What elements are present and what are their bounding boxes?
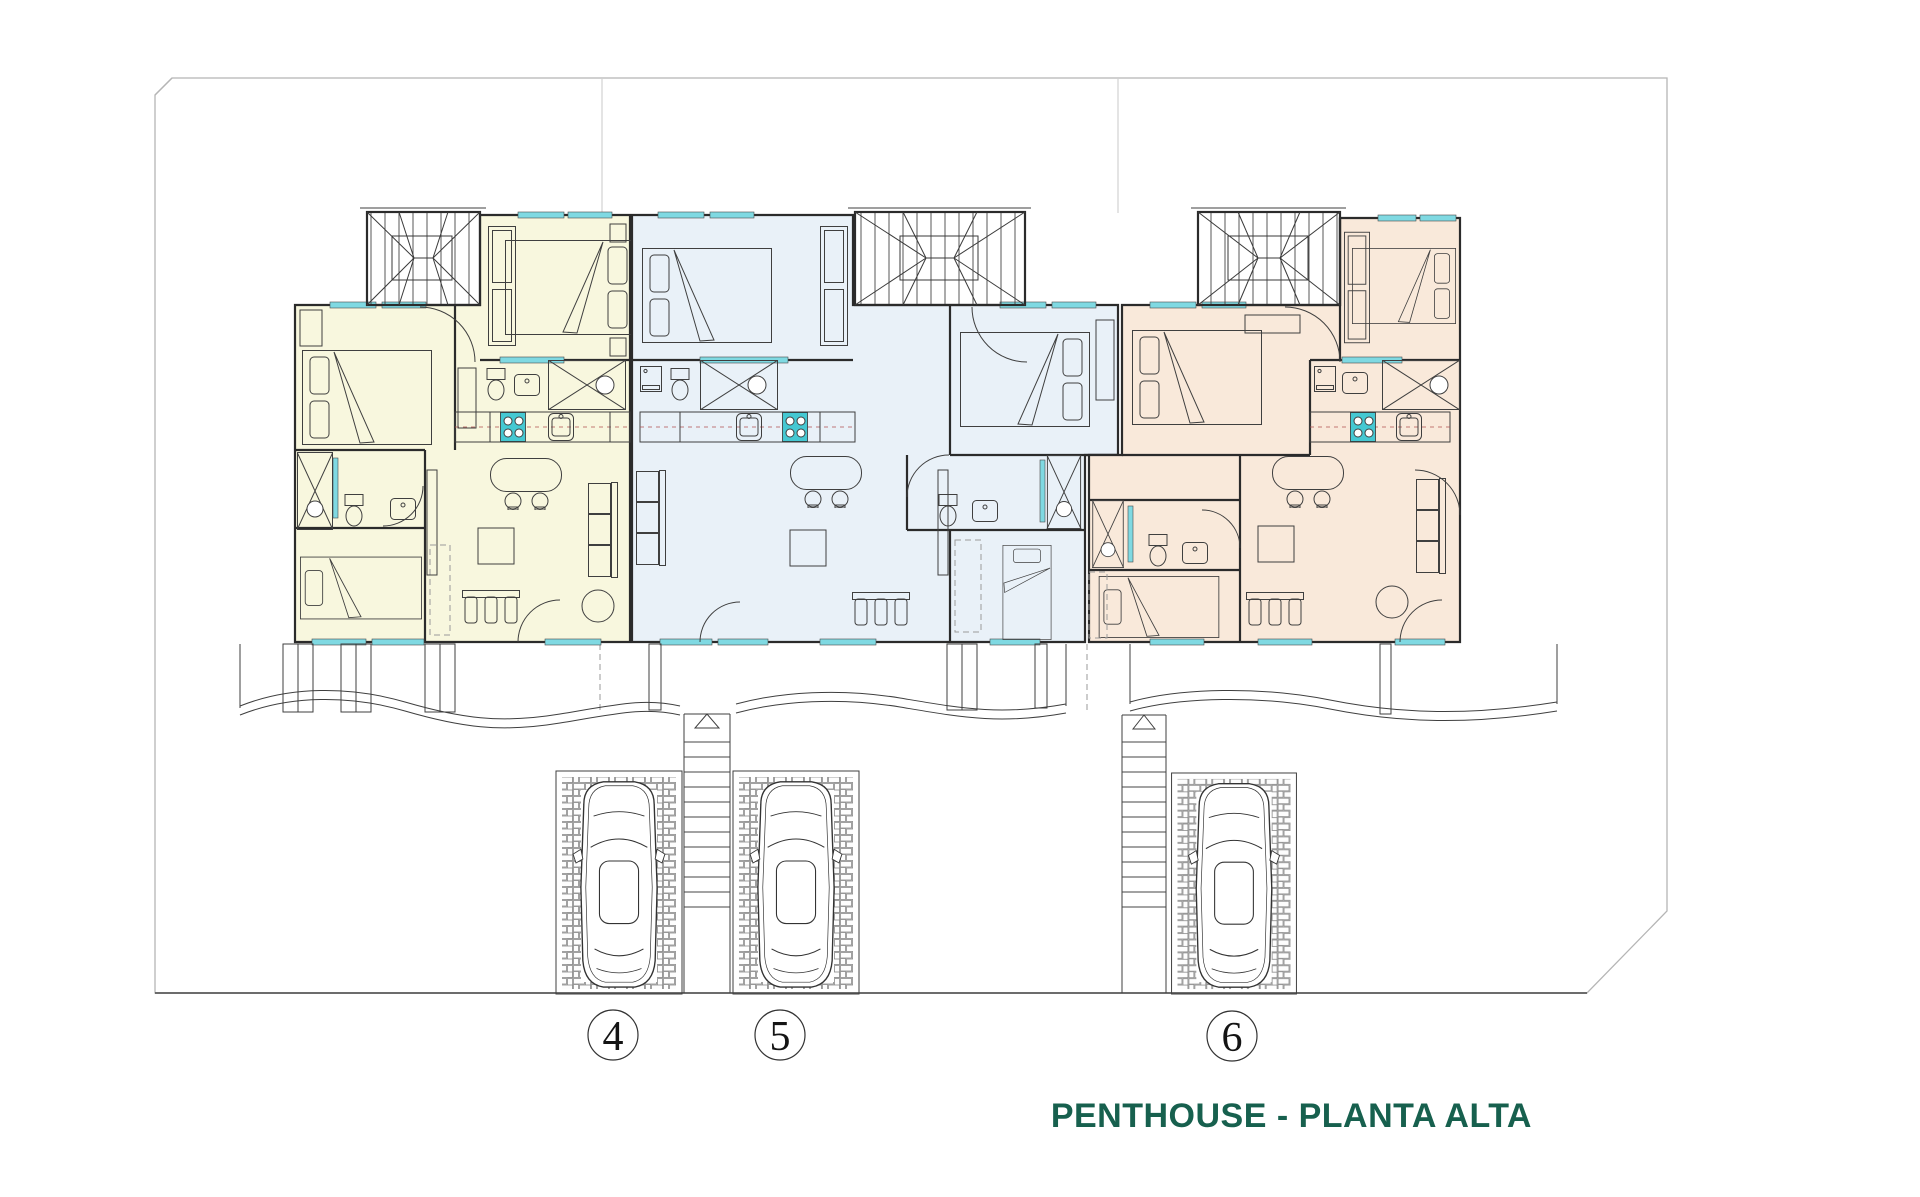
unit-5-number: 5: [770, 1014, 791, 1060]
external-stair-unit6: [1122, 715, 1166, 993]
plan-title: PENTHOUSE - PLANTA ALTA: [1051, 1097, 1532, 1135]
window-strip: [518, 212, 564, 218]
window-strip: [1040, 460, 1045, 522]
window-strip: [1052, 302, 1096, 308]
unit-number-badges: 4 5 6: [588, 1010, 1257, 1061]
balcony-posts: [283, 644, 1391, 714]
window-strip: [372, 639, 424, 645]
window-strip: [820, 639, 876, 645]
floor-plan-drawing: 4 5 6 PENTHOUSE - PLANTA ALTA: [0, 0, 1920, 1197]
unit-4-number: 4: [603, 1014, 624, 1060]
stove-icon: [783, 413, 808, 442]
window-strip: [658, 212, 704, 218]
window-strip: [1420, 215, 1456, 221]
window-strip: [660, 639, 712, 645]
window-strip: [710, 212, 754, 218]
window-strip: [718, 639, 768, 645]
window-strip: [333, 458, 338, 518]
stairwell-b: [848, 208, 1031, 305]
stairwell-a: [360, 208, 486, 305]
terrace: [240, 644, 1557, 728]
external-stair-unit45: [684, 714, 730, 993]
window-strip: [1150, 302, 1196, 308]
window-strip: [1128, 506, 1133, 562]
window-strip: [545, 639, 601, 645]
stove-icon: [1351, 413, 1376, 442]
stair-direction-arrow: [695, 714, 719, 728]
unit-6-number: 6: [1222, 1015, 1243, 1061]
parking-space-6: [1172, 773, 1297, 994]
parking-row: [556, 771, 1296, 994]
window-strip: [1150, 639, 1204, 645]
stove-icon: [501, 413, 526, 442]
parking-space-4: [556, 771, 682, 994]
window-strip: [1378, 215, 1416, 221]
window-strip: [1258, 639, 1312, 645]
window-strip: [1395, 639, 1445, 645]
parking-space-5: [733, 771, 859, 994]
window-strip: [568, 212, 612, 218]
stairwell-c: [1191, 208, 1346, 305]
stair-direction-arrow: [1133, 715, 1155, 729]
terrace-wavy-edge: [240, 644, 1557, 728]
floor-plan-page: 4 5 6 PENTHOUSE - PLANTA ALTA: [0, 0, 1920, 1197]
